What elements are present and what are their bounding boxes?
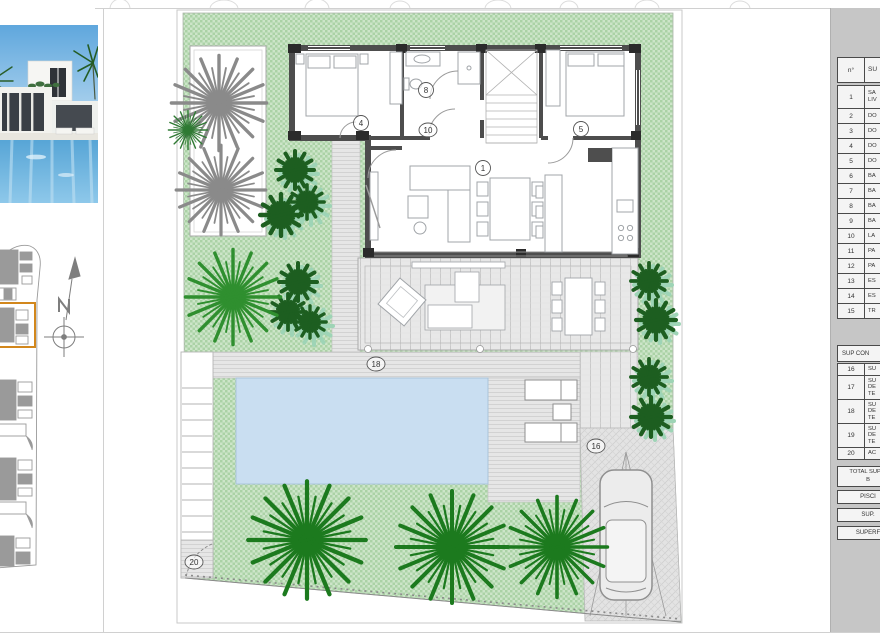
palm-tree-icon [248,481,366,599]
table-row: 3DO [837,123,880,139]
table-row: 20AC [837,447,880,460]
table-row: 15TR [837,303,880,319]
label-bed-right: 5 [574,122,589,137]
table-band: SUP. [837,508,880,522]
small-palm-icon [168,110,207,149]
table-row: 6BA [837,168,880,184]
label-living: 1 [476,161,491,176]
svg-text:4: 4 [359,119,364,128]
table-row: 4DO [837,138,880,154]
table-row: 7BA [837,183,880,199]
label-bath: 8 [419,83,434,98]
col-header-number: n° [838,58,865,82]
table-row: 2DO [837,108,880,124]
side-path [332,140,360,352]
surface-table-section-header: SUP CON [837,345,880,362]
table-band: SUPERF [837,526,880,540]
svg-text:8: 8 [424,86,429,95]
col-header-label: SU [865,65,880,74]
terrace-deck [358,258,638,353]
palm-tree-icon [507,497,608,598]
gray-palm-icon [176,145,266,235]
table-row: 9BA [837,213,880,229]
surface-table-panel: n° SU 1SA LIV2DO3DO4DO5DO6BA7BA8BA9BA10L… [830,8,880,632]
table-row: 11PA [837,243,880,259]
table-row: 13ES [837,273,880,289]
table-row: 19SU DE TE [837,423,880,448]
table-row: 14ES [837,288,880,304]
table-row: 5DO [837,153,880,169]
pool [236,378,488,484]
surface-table-rows2: 16SU17SU DE TE18SU DE TE19SU DE TE20AC [837,364,880,460]
bedroom-right-furniture [546,50,624,116]
label-hall: 10 [419,123,437,137]
svg-text:18: 18 [372,360,381,369]
label-parking: 16 [587,439,605,453]
surface-table-bands: PISCISUP.SUPERF [837,490,880,544]
table-row: 8BA [837,198,880,214]
palm-tree-icon [185,249,280,344]
deck-dining-set [552,278,605,335]
label-entrance: 20 [185,555,203,569]
site-plan: 1 4 5 8 10 16 18 20 [0,0,880,640]
kitchen-appliance [588,148,612,162]
table-row: 18SU DE TE [837,399,880,424]
label-terrace: 18 [367,357,385,371]
drawing-sheet: { "sheet": { "type": "villa site plan dr… [0,0,880,640]
table-row: 1SA LIV [837,85,880,109]
table-row: 12PA [837,258,880,274]
palm-tree-icon [396,491,508,603]
table-row: 17SU DE TE [837,375,880,400]
svg-text:10: 10 [424,126,433,135]
surface-table-header: n° SU [837,57,880,83]
svg-text:16: 16 [592,442,601,451]
table-band: PISCI [837,490,880,504]
plank-path [580,352,637,428]
pool-surround [213,352,638,378]
surface-table-total: TOTAL SUP C B [837,466,880,487]
entrance-steps [181,352,213,578]
svg-text:20: 20 [190,558,199,567]
svg-text:5: 5 [579,125,584,134]
label-bed-left: 4 [354,116,369,131]
surface-table-rows: 1SA LIV2DO3DO4DO5DO6BA7BA8BA9BA10LA11PA1… [837,86,880,319]
table-row: 10LA [837,228,880,244]
svg-text:1: 1 [481,164,486,173]
